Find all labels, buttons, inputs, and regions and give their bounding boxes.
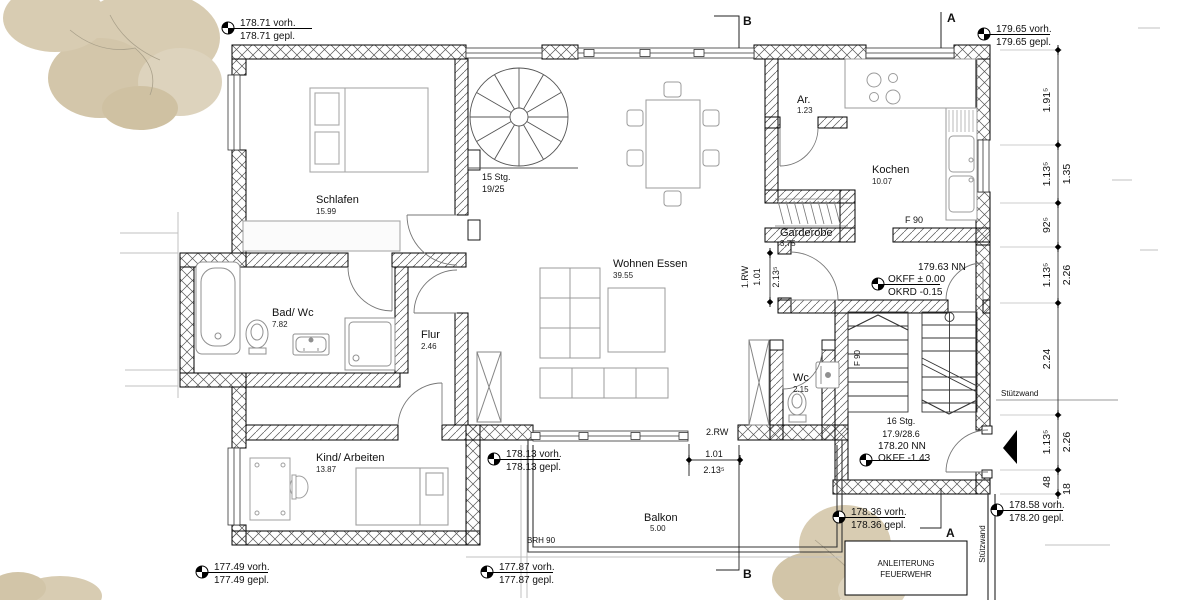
- level-bl-line1: 177.49 vorh.: [214, 562, 270, 573]
- toilet-wc: [788, 391, 806, 422]
- level-marker-bottom-left: 177.49 vorh. 177.49 gepl.: [196, 562, 270, 586]
- level-tl-line2: 178.71 gepl.: [240, 31, 295, 42]
- room-kind-area: 13.87: [316, 465, 337, 474]
- section-a-bottom-label: A: [946, 526, 955, 540]
- room-bad-area: 7.82: [272, 320, 288, 329]
- main-stair: [848, 312, 977, 414]
- floor-plan-canvas: B B A A 1.91⁵ 1.13⁵ 92⁵ 1.13⁵ 2.24 1.13⁵…: [0, 0, 1200, 600]
- level-mid-line3: OKRD -0.15: [888, 287, 943, 298]
- room-garderobe-name: Garderobe: [780, 227, 833, 239]
- level-marker-top-right: 179.65 vorh. 179.65 gepl.: [978, 24, 1052, 48]
- wardrobe: [243, 221, 400, 251]
- balcony-parapet: [528, 440, 842, 552]
- level-tr-line1: 179.65 vorh.: [996, 24, 1052, 35]
- level-mid-line1: 179.63 NN: [918, 262, 966, 273]
- level-br2-line1: 178.58 vorh.: [1009, 500, 1065, 511]
- shaft-right: [749, 340, 769, 425]
- tree-top-left: [3, 0, 222, 130]
- rw1-label: 1.RW: [740, 265, 750, 288]
- section-line-b-bottom: [716, 445, 739, 570]
- coffee-table: [608, 288, 665, 352]
- dim-inner-2: 92⁵: [1041, 217, 1053, 233]
- rw1-width: 1.01: [752, 268, 762, 286]
- level-mid-line2: OKFF ± 0.00: [888, 274, 946, 285]
- level-tl-line1: 178.71 vorh.: [240, 18, 296, 29]
- floor-plan-page: B B A A 1.91⁵ 1.13⁵ 92⁵ 1.13⁵ 2.24 1.13⁵…: [0, 0, 1200, 600]
- dining-set: [627, 82, 719, 206]
- room-ar-area: 1.23: [797, 106, 813, 115]
- section-line-b-top: [714, 16, 739, 48]
- room-balkon-name: Balkon: [644, 512, 678, 524]
- shelf-unit: [540, 268, 600, 358]
- dim-inner-6: 48: [1041, 476, 1053, 488]
- kitchen-counter: [845, 59, 977, 108]
- kitchen-sink: [946, 108, 977, 220]
- room-kochen-name: Kochen: [872, 164, 909, 176]
- bathtub: [196, 262, 240, 354]
- level-marker-top-left: 178.71 vorh. 178.71 gepl.: [222, 18, 312, 42]
- desk: [250, 458, 290, 520]
- room-schlafen-area: 15.99: [316, 207, 337, 216]
- rw2-dimension: 2.RW 1.01 2.13⁵: [686, 427, 743, 476]
- dim-inner-5: 1.13⁵: [1041, 430, 1053, 455]
- room-wc-area: 2.15: [793, 385, 809, 394]
- room-wohnen-area: 39.55: [613, 271, 634, 280]
- room-schlafen-name: Schlafen: [316, 194, 359, 206]
- desk-chair: [290, 475, 308, 499]
- dim-inner-4: 2.24: [1041, 349, 1053, 370]
- dimension-chain-right: 1.91⁵ 1.13⁵ 92⁵ 1.13⁵ 2.24 1.13⁵ 48 1.35…: [1000, 45, 1073, 499]
- shower: [345, 318, 395, 370]
- dim-outer-0: 1.35: [1061, 164, 1073, 185]
- main-stair-label-1: 16 Stg.: [887, 416, 916, 426]
- dim-inner-3: 1.13⁵: [1041, 263, 1053, 288]
- level-marker-bottom-mid: 177.87 vorh. 177.87 gepl.: [481, 562, 555, 586]
- rw2-height: 2.13⁵: [703, 465, 725, 475]
- f90-kitchen-label: F 90: [905, 215, 923, 225]
- rw1-dimension: 1.RW 1.01 2.13⁵: [740, 248, 781, 307]
- main-stair-label-2: 17.9/28.6: [882, 429, 920, 439]
- level-br1-line2: 178.36 gepl.: [851, 520, 906, 531]
- room-wc-name: Wc: [793, 372, 809, 384]
- room-garderobe-area: 3.75: [780, 239, 796, 248]
- level-marker-bottom-right-2: 178.58 vorh. 178.20 gepl.: [991, 500, 1065, 524]
- dim-inner-0: 1.91⁵: [1041, 88, 1053, 113]
- fire-brigade-line2: FEUERWEHR: [880, 570, 932, 579]
- rw2-width: 1.01: [705, 449, 723, 459]
- spiral-stair-label-1: 15 Stg.: [482, 172, 511, 182]
- room-flur-name: Flur: [421, 329, 440, 341]
- level-bm-line2: 177.87 gepl.: [499, 575, 554, 586]
- fire-brigade-line1: ANLEITERUNG: [878, 559, 935, 568]
- tree-bottom-left: [0, 572, 102, 600]
- dim-outer-3: 18: [1061, 483, 1073, 495]
- room-ar-name: Ar.: [797, 94, 810, 106]
- stuetzwand-top-label: Stützwand: [1001, 389, 1038, 398]
- level-tr-line2: 179.65 gepl.: [996, 37, 1051, 48]
- level-bm-line1: 177.87 vorh.: [499, 562, 555, 573]
- stuetzwand-bottom-label: Stützwand: [978, 525, 987, 562]
- child-bed: [356, 468, 448, 525]
- fire-brigade-box: ANLEITERUNG FEUERWEHR: [845, 541, 967, 595]
- washbasin-wc: [816, 362, 839, 388]
- washbasin-bad: [293, 334, 329, 355]
- room-balkon-area: 5.00: [650, 524, 666, 533]
- spiral-stair-label-2: 19/25: [482, 184, 505, 194]
- spiral-stair: [468, 68, 578, 168]
- toilet-bad: [246, 320, 268, 354]
- level-terr-line2: 178.13 gepl.: [506, 462, 561, 473]
- section-b-bottom-label: B: [743, 567, 752, 581]
- room-wohnen-name: Wohnen Essen: [613, 258, 687, 270]
- level-entry-line2: OKFF -1.43: [878, 453, 931, 464]
- level-terr-line1: 178.13 vorh.: [506, 449, 562, 460]
- shaft-left: [477, 352, 501, 422]
- level-marker-entry: 178.20 NN OKFF -1.43: [860, 441, 931, 466]
- dim-outer-2: 2.26: [1061, 432, 1073, 453]
- room-kind-name: Kind/ Arbeiten: [316, 452, 385, 464]
- level-br2-line2: 178.20 gepl.: [1009, 513, 1064, 524]
- dim-inner-1: 1.13⁵: [1041, 162, 1053, 187]
- level-entry-line1: 178.20 NN: [878, 441, 926, 452]
- room-bad-name: Bad/ Wc: [272, 307, 314, 319]
- level-bl-line2: 177.49 gepl.: [214, 575, 269, 586]
- rw1-height: 2.13⁵: [771, 266, 781, 288]
- section-a-top-label: A: [947, 11, 956, 25]
- rw2-label: 2.RW: [706, 427, 729, 437]
- level-br1-line1: 178.36 vorh.: [851, 507, 907, 518]
- level-marker-terrace: 178.13 vorh. 178.13 gepl.: [488, 449, 562, 473]
- sideboard: [540, 368, 668, 398]
- room-flur-area: 2.46: [421, 342, 437, 351]
- dim-outer-1: 2.26: [1061, 265, 1073, 286]
- f90-stair-label: F 90: [853, 349, 862, 366]
- room-kochen-area: 10.07: [872, 177, 893, 186]
- bed: [310, 88, 428, 172]
- brh-label: BRH 90: [527, 536, 556, 545]
- section-b-top-label: B: [743, 14, 752, 28]
- entrance-arrow-icon: [1003, 430, 1017, 464]
